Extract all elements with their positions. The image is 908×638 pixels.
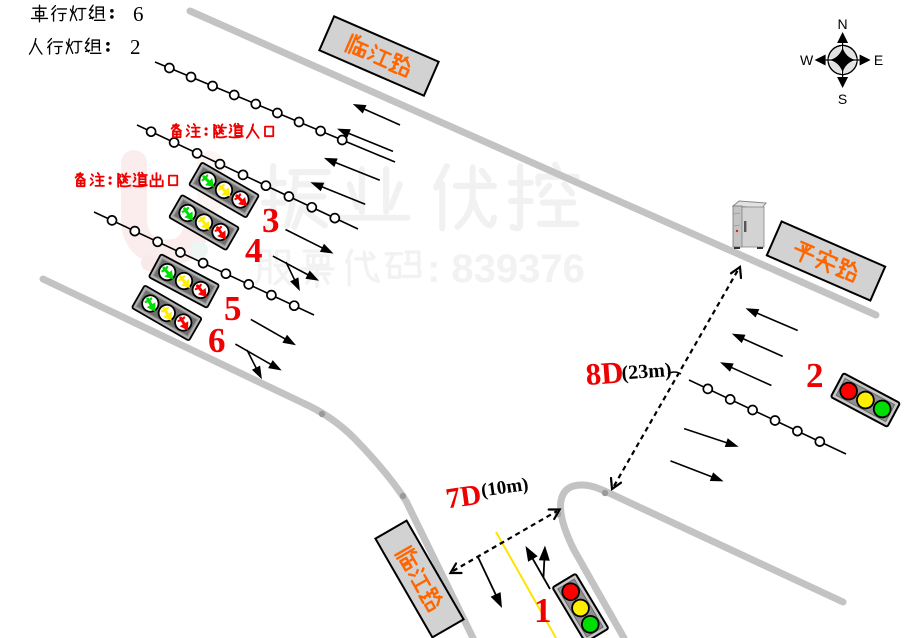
svg-text:6: 6 [133,2,144,26]
svg-text:2: 2 [806,356,824,395]
svg-text:E: E [874,52,883,68]
svg-text:6: 6 [208,321,226,360]
svg-text:7D: 7D [444,479,484,516]
svg-text:1: 1 [534,591,552,630]
svg-text:W: W [800,52,814,68]
svg-text:8D: 8D [584,354,624,392]
svg-text:: 839376: : 839376 [427,247,585,291]
svg-text:5: 5 [224,289,242,328]
svg-text:3: 3 [262,201,280,240]
svg-text:2: 2 [130,35,141,59]
svg-text:N: N [838,16,848,32]
svg-text:4: 4 [245,231,263,270]
svg-text:(23m): (23m) [621,359,672,384]
svg-text:S: S [838,91,847,107]
svg-text:(10m): (10m) [480,474,530,501]
